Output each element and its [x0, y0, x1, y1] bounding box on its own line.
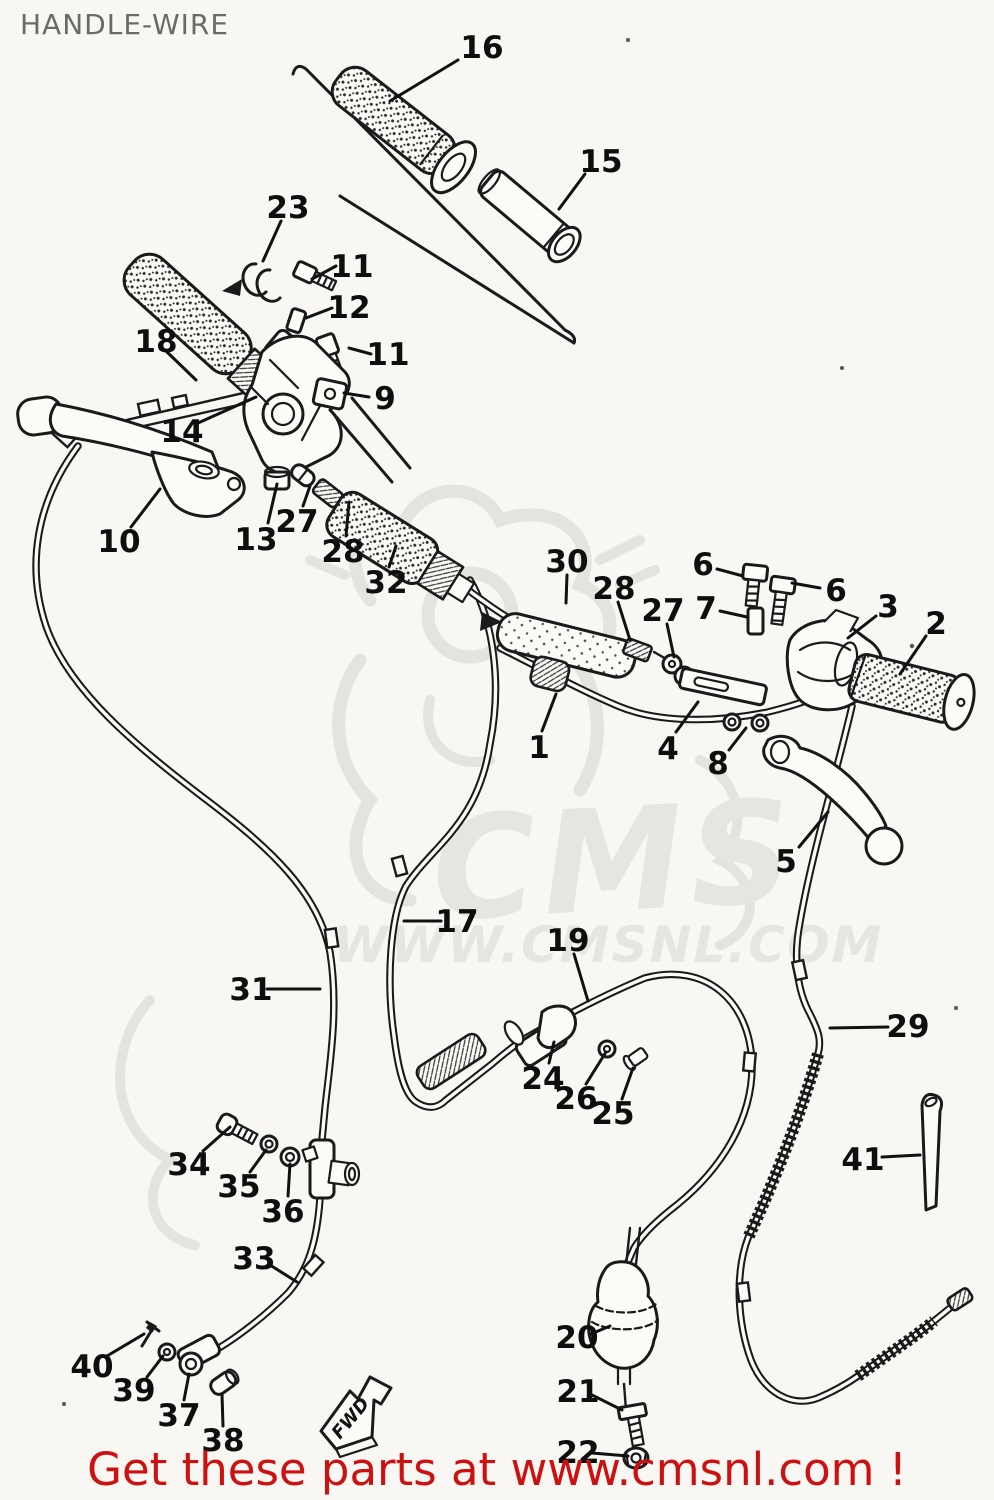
leader-line-6-17 [717, 569, 743, 576]
part-label-30-14: 30 [545, 544, 588, 580]
part-washer-26 [599, 1041, 615, 1057]
part-spacer-12 [286, 308, 306, 333]
part-label-37-40: 37 [157, 1398, 200, 1434]
part-label-23-2: 23 [266, 190, 309, 226]
cable-coil-upper [748, 1054, 818, 1238]
parts-diagram-page: CMS WWW.CMSNL.COM [0, 0, 994, 1500]
part-label-33-37: 33 [232, 1241, 275, 1277]
part-label-20-42: 20 [555, 1320, 598, 1356]
part-label-11-5: 11 [366, 337, 409, 373]
leader-line-25-32 [622, 1068, 633, 1099]
part-label-5-25: 5 [775, 844, 797, 880]
part-clamp-24 [501, 1006, 575, 1068]
part-label-28-15: 28 [592, 571, 635, 607]
part-label-17-26: 17 [435, 904, 478, 940]
part-label-3-20: 3 [877, 589, 899, 625]
leader-line-29-29 [830, 1027, 888, 1028]
leader-line-1-22 [542, 694, 556, 731]
part-label-12-4: 12 [327, 290, 370, 326]
part-label-9-7: 9 [374, 381, 396, 417]
handle-wire-diagram: CMS WWW.CMSNL.COM [0, 0, 994, 1500]
leader-line-37-40 [184, 1374, 189, 1400]
part-label-41-33: 41 [841, 1142, 884, 1178]
footer-ad-text: Get these parts at www.cmsnl.com ! [0, 1443, 994, 1496]
part-cable-tip [946, 1287, 974, 1312]
part-label-40-38: 40 [70, 1349, 113, 1385]
part-label-18-6: 18 [134, 324, 177, 360]
leader-line-27-11 [303, 486, 310, 506]
part-label-36-36: 36 [261, 1194, 304, 1230]
part-label-27-16: 27 [641, 593, 684, 629]
part-label-21-43: 21 [556, 1374, 599, 1410]
part-label-35-35: 35 [217, 1169, 260, 1205]
part-grip-16 [320, 54, 484, 200]
leader-line-23-2 [263, 221, 281, 261]
part-label-7-19: 7 [695, 591, 717, 627]
part-bolt-38 [208, 1367, 241, 1397]
part-label-11-3: 11 [330, 249, 373, 285]
part-clamp-37 [176, 1333, 222, 1375]
leader-line-41-33 [882, 1155, 920, 1157]
part-grip-2 [845, 648, 979, 732]
part-label-25-32: 25 [591, 1096, 634, 1132]
part-label-6-17: 6 [692, 547, 714, 583]
leader-line-38-41 [222, 1394, 223, 1426]
part-strap-41 [922, 1094, 942, 1210]
leader-line-26-31 [586, 1052, 606, 1084]
part-label-2-21: 2 [925, 606, 947, 642]
part-labels: 1615231112111891410132728323028276673214… [70, 30, 946, 1471]
part-label-8-24: 8 [707, 746, 729, 782]
part-spacer-7 [748, 608, 763, 634]
leader-line-10-9 [131, 489, 160, 527]
part-label-31-28: 31 [229, 972, 272, 1008]
part-washer-35 [261, 1136, 277, 1152]
part-bolt-6a [740, 564, 768, 607]
part-label-13-10: 13 [234, 522, 277, 558]
leader-line-16-0 [390, 60, 458, 101]
page-title: HANDLE-WIRE [20, 8, 229, 41]
cable-coil-lower [858, 1321, 934, 1376]
part-bracket-9 [313, 378, 348, 410]
part-screw-25 [622, 1045, 650, 1071]
part-label-1-22: 1 [528, 730, 550, 766]
part-label-14-8: 14 [160, 414, 203, 450]
part-label-39-39: 39 [112, 1373, 155, 1409]
part-label-29-29: 29 [886, 1009, 929, 1045]
part-label-4-23: 4 [657, 731, 679, 767]
leader-line-9-7 [344, 393, 369, 397]
leader-line-7-19 [720, 611, 747, 617]
leader-line-28-15 [618, 602, 630, 640]
part-label-28-12: 28 [321, 534, 364, 570]
leader-line-36-36 [288, 1164, 290, 1196]
part-label-19-27: 19 [546, 923, 589, 959]
part-bolt-34 [215, 1112, 259, 1148]
part-clamp-23 [222, 264, 280, 301]
part-label-6-18: 6 [825, 573, 847, 609]
part-label-27-11: 27 [275, 504, 318, 540]
part-label-34-34: 34 [167, 1147, 210, 1183]
part-label-10-9: 10 [97, 524, 140, 560]
assembly-arrow-icon [222, 279, 242, 296]
part-knurl-sleeve-19 [414, 1031, 489, 1092]
part-label-15-1: 15 [579, 144, 622, 180]
part-label-32-13: 32 [364, 565, 407, 601]
part-junction [302, 1140, 359, 1198]
part-label-16-0: 16 [460, 30, 503, 66]
part-bracket-4 [679, 668, 767, 705]
